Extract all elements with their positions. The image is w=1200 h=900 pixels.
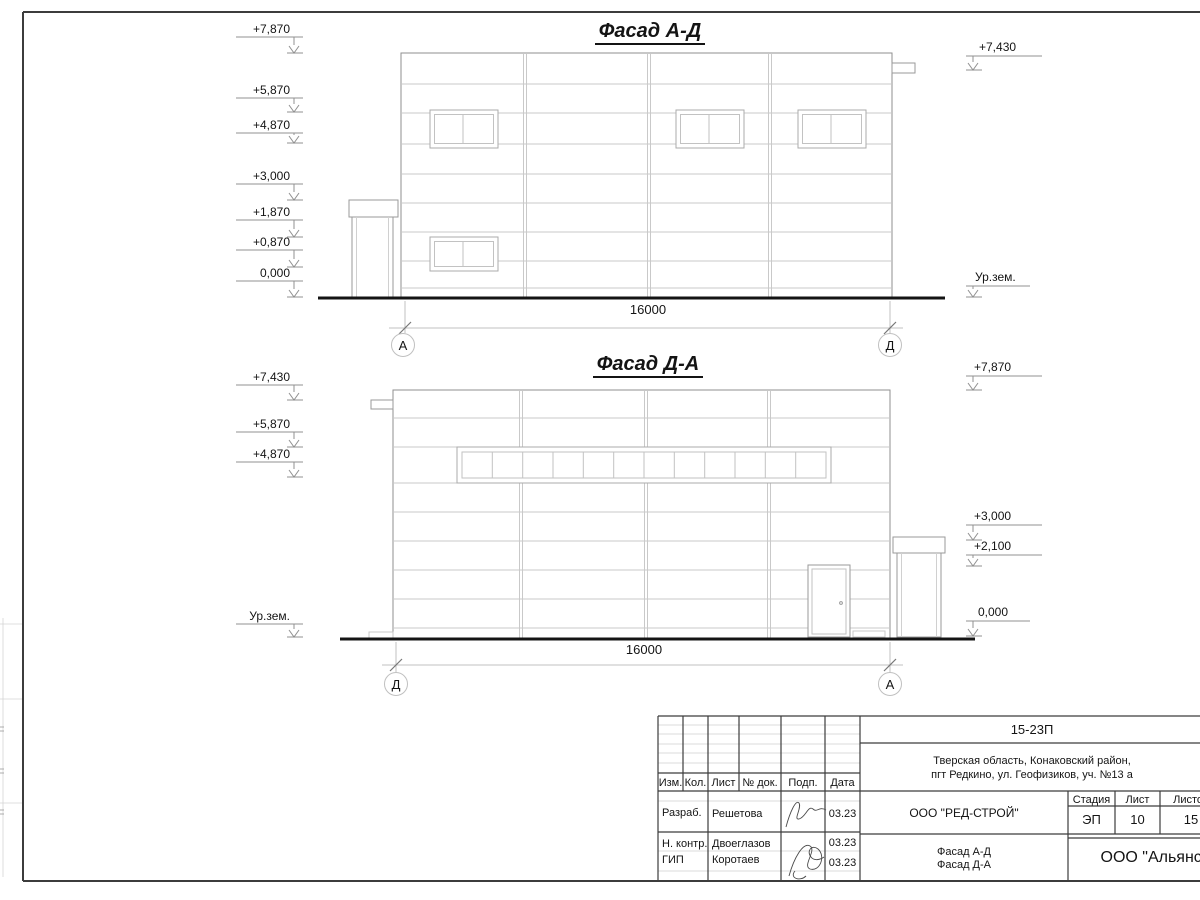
drawing-title-line1: Фасад А-Д: [860, 845, 1068, 859]
stage-header: Стадия: [1068, 793, 1115, 807]
titleblock-name: Коротаев: [712, 853, 760, 867]
drawing-sheet: Фасад А-Д Фасад Д-А +7,870 +5,870 +4,870…: [0, 0, 1200, 900]
facade-bottom-step-left: [369, 632, 393, 638]
titleblock-role: Н. контр.: [662, 837, 707, 851]
elevation-label: +4,870: [210, 119, 290, 132]
elevation-label: +0,870: [210, 236, 290, 249]
facade-top-title-text: Фасад А-Д: [595, 20, 705, 45]
ground-level-label: Ур.зем.: [975, 271, 1016, 284]
titleblock-col-data: Дата: [825, 776, 860, 790]
titleblock-role: Разраб.: [662, 806, 702, 820]
elevation-label: 0,000: [210, 267, 290, 280]
facade-top-title: Фасад А-Д: [550, 20, 750, 42]
dimension-label: 16000: [598, 303, 698, 316]
facade-top-porch: [349, 200, 398, 299]
titleblock-role: ГИП: [662, 853, 684, 867]
titleblock-col-doc: № док.: [739, 776, 781, 790]
elevation-label: +3,000: [974, 510, 1011, 523]
sheet-header: Лист: [1115, 793, 1160, 807]
axis-label: Д: [384, 677, 408, 692]
left-edge-fragment: [0, 618, 22, 877]
titleblock-col-podp: Подп.: [781, 776, 825, 790]
sheets-header: Листов: [1160, 793, 1200, 807]
elevation-label: +7,430: [210, 371, 290, 384]
site-address-line1: Тверская область, Конаковский район,: [860, 754, 1200, 768]
titleblock-name: Решетова: [712, 807, 762, 821]
elevation-label: +7,870: [210, 23, 290, 36]
elevation-label: +7,870: [974, 361, 1011, 374]
titleblock-col-list: Лист: [708, 776, 739, 790]
org-name: ООО "Альянс": [1068, 848, 1200, 868]
titleblock-name: Двоеглазов: [712, 837, 770, 851]
elevation-label: +5,870: [210, 84, 290, 97]
axis-label: А: [878, 677, 902, 692]
facade-top-roof-outlet: [892, 63, 915, 73]
facade-bottom-porch: [893, 537, 945, 637]
elevation-label: +4,870: [210, 448, 290, 461]
doc-number: 15-23П: [860, 722, 1200, 737]
drawing-title-line2: Фасад Д-А: [860, 858, 1068, 872]
titleblock-col-izm: Изм.: [658, 776, 683, 790]
facade-bottom-door: [808, 565, 850, 637]
axis-label: А: [391, 338, 415, 353]
titleblock-col-kol: Кол.: [683, 776, 708, 790]
dimension-label: 16000: [594, 643, 694, 656]
sheets-value: 15: [1160, 812, 1200, 827]
elevation-label: +1,870: [210, 206, 290, 219]
ground-level-label: Ур.зем.: [210, 610, 290, 623]
titleblock-date: 03.23: [825, 836, 860, 850]
site-address-line2: пгт Редкино, ул. Геофизиков, уч. №13 а: [860, 768, 1200, 782]
company-name: ООО "РЕД-СТРОЙ": [860, 806, 1068, 820]
facade-bottom-roof-outlet: [371, 400, 393, 409]
elevation-label: +5,870: [210, 418, 290, 431]
elevation-label: 0,000: [978, 606, 1008, 619]
sheet-value: 10: [1115, 812, 1160, 827]
elevation-label: +2,100: [974, 540, 1011, 553]
elevation-label: +7,430: [979, 41, 1016, 54]
titleblock-date: 03.23: [825, 856, 860, 870]
titleblock-date: 03.23: [825, 807, 860, 821]
signature-marks: [786, 802, 826, 879]
stage-value: ЭП: [1068, 812, 1115, 827]
facade-bottom-step-right: [853, 631, 885, 637]
axis-label: Д: [878, 338, 902, 353]
elevation-label: +3,000: [210, 170, 290, 183]
facade-bottom-ribbon-window: [457, 447, 831, 483]
facade-bottom-title: Фасад Д-А: [548, 353, 748, 375]
facade-bottom-title-text: Фасад Д-А: [593, 353, 703, 378]
